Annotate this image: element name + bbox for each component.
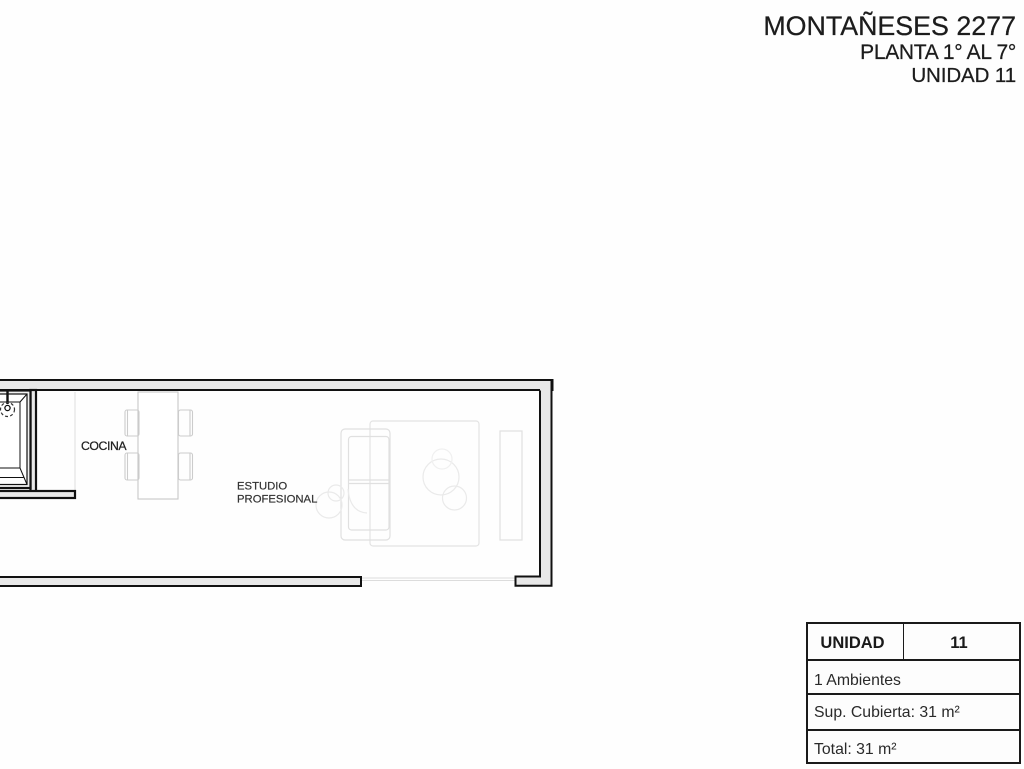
svg-text:ESTUDIO: ESTUDIO: [237, 481, 287, 493]
svg-text:COCINA: COCINA: [81, 439, 127, 453]
svg-text:PROFESIONAL: PROFESIONAL: [237, 494, 317, 506]
